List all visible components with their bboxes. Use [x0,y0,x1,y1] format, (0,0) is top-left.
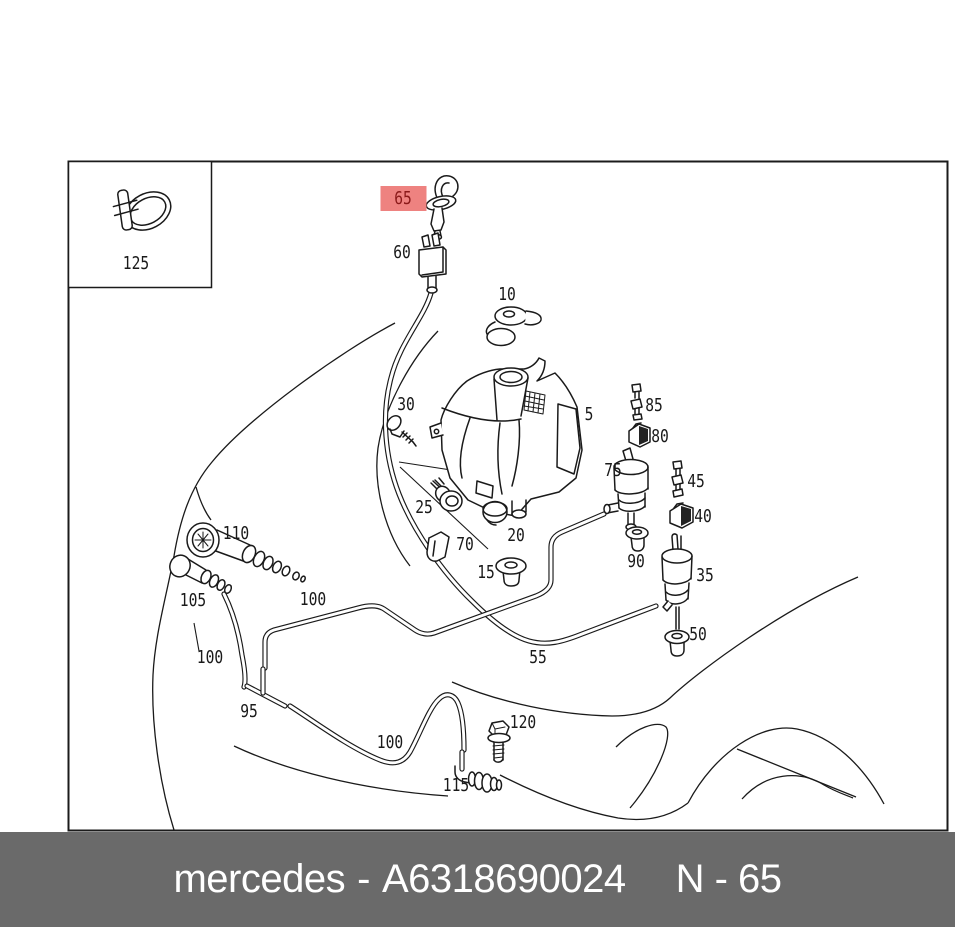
parts-diagram-canvas: 1256560105308580754540252070159035501101… [0,0,955,837]
part-label-100[interactable]: 100 [300,590,326,610]
part-label-25[interactable]: 25 [415,498,433,518]
part-label-90[interactable]: 90 [627,552,645,572]
part-label-55[interactable]: 55 [529,648,547,668]
part-label-70[interactable]: 70 [456,535,474,555]
part-label-60[interactable]: 60 [393,243,411,263]
part-label-75[interactable]: 75 [604,461,622,481]
separator-text: - [357,857,370,902]
part-label-115[interactable]: 115 [443,776,469,796]
part-label-85[interactable]: 85 [645,396,663,416]
connector-85-drawing [631,384,642,420]
part-label-10[interactable]: 10 [498,285,516,305]
part-label-105[interactable]: 105 [180,591,206,611]
part-label-40[interactable]: 40 [694,507,712,527]
part-label-35[interactable]: 35 [696,566,714,586]
reference-text: N - 65 [676,857,782,902]
part-label-120[interactable]: 120 [510,713,536,733]
part-label-95[interactable]: 95 [240,702,258,722]
part-label-100[interactable]: 100 [377,733,403,753]
part-label-65[interactable]: 65 [394,189,412,209]
part-label-5[interactable]: 5 [585,405,594,425]
brand-text: mercedes [173,857,345,902]
connector-45-drawing [672,461,683,497]
footer-bar: mercedes - A6318690024 N - 65 [0,832,955,927]
part-number-group: mercedes - A6318690024 [173,857,625,902]
part-label-20[interactable]: 20 [507,526,525,546]
part-number-text: A6318690024 [382,857,626,902]
part-label-15[interactable]: 15 [477,563,495,583]
part-label-80[interactable]: 80 [651,427,669,447]
part-label-50[interactable]: 50 [689,625,707,645]
part-label-30[interactable]: 30 [397,395,415,415]
part-label-110[interactable]: 110 [223,524,249,544]
exploded-parts-diagram: 1256560105308580754540252070159035501101… [0,0,955,832]
part-label-100[interactable]: 100 [197,648,223,668]
part-label-45[interactable]: 45 [687,472,705,492]
part-label-125[interactable]: 125 [123,254,149,274]
